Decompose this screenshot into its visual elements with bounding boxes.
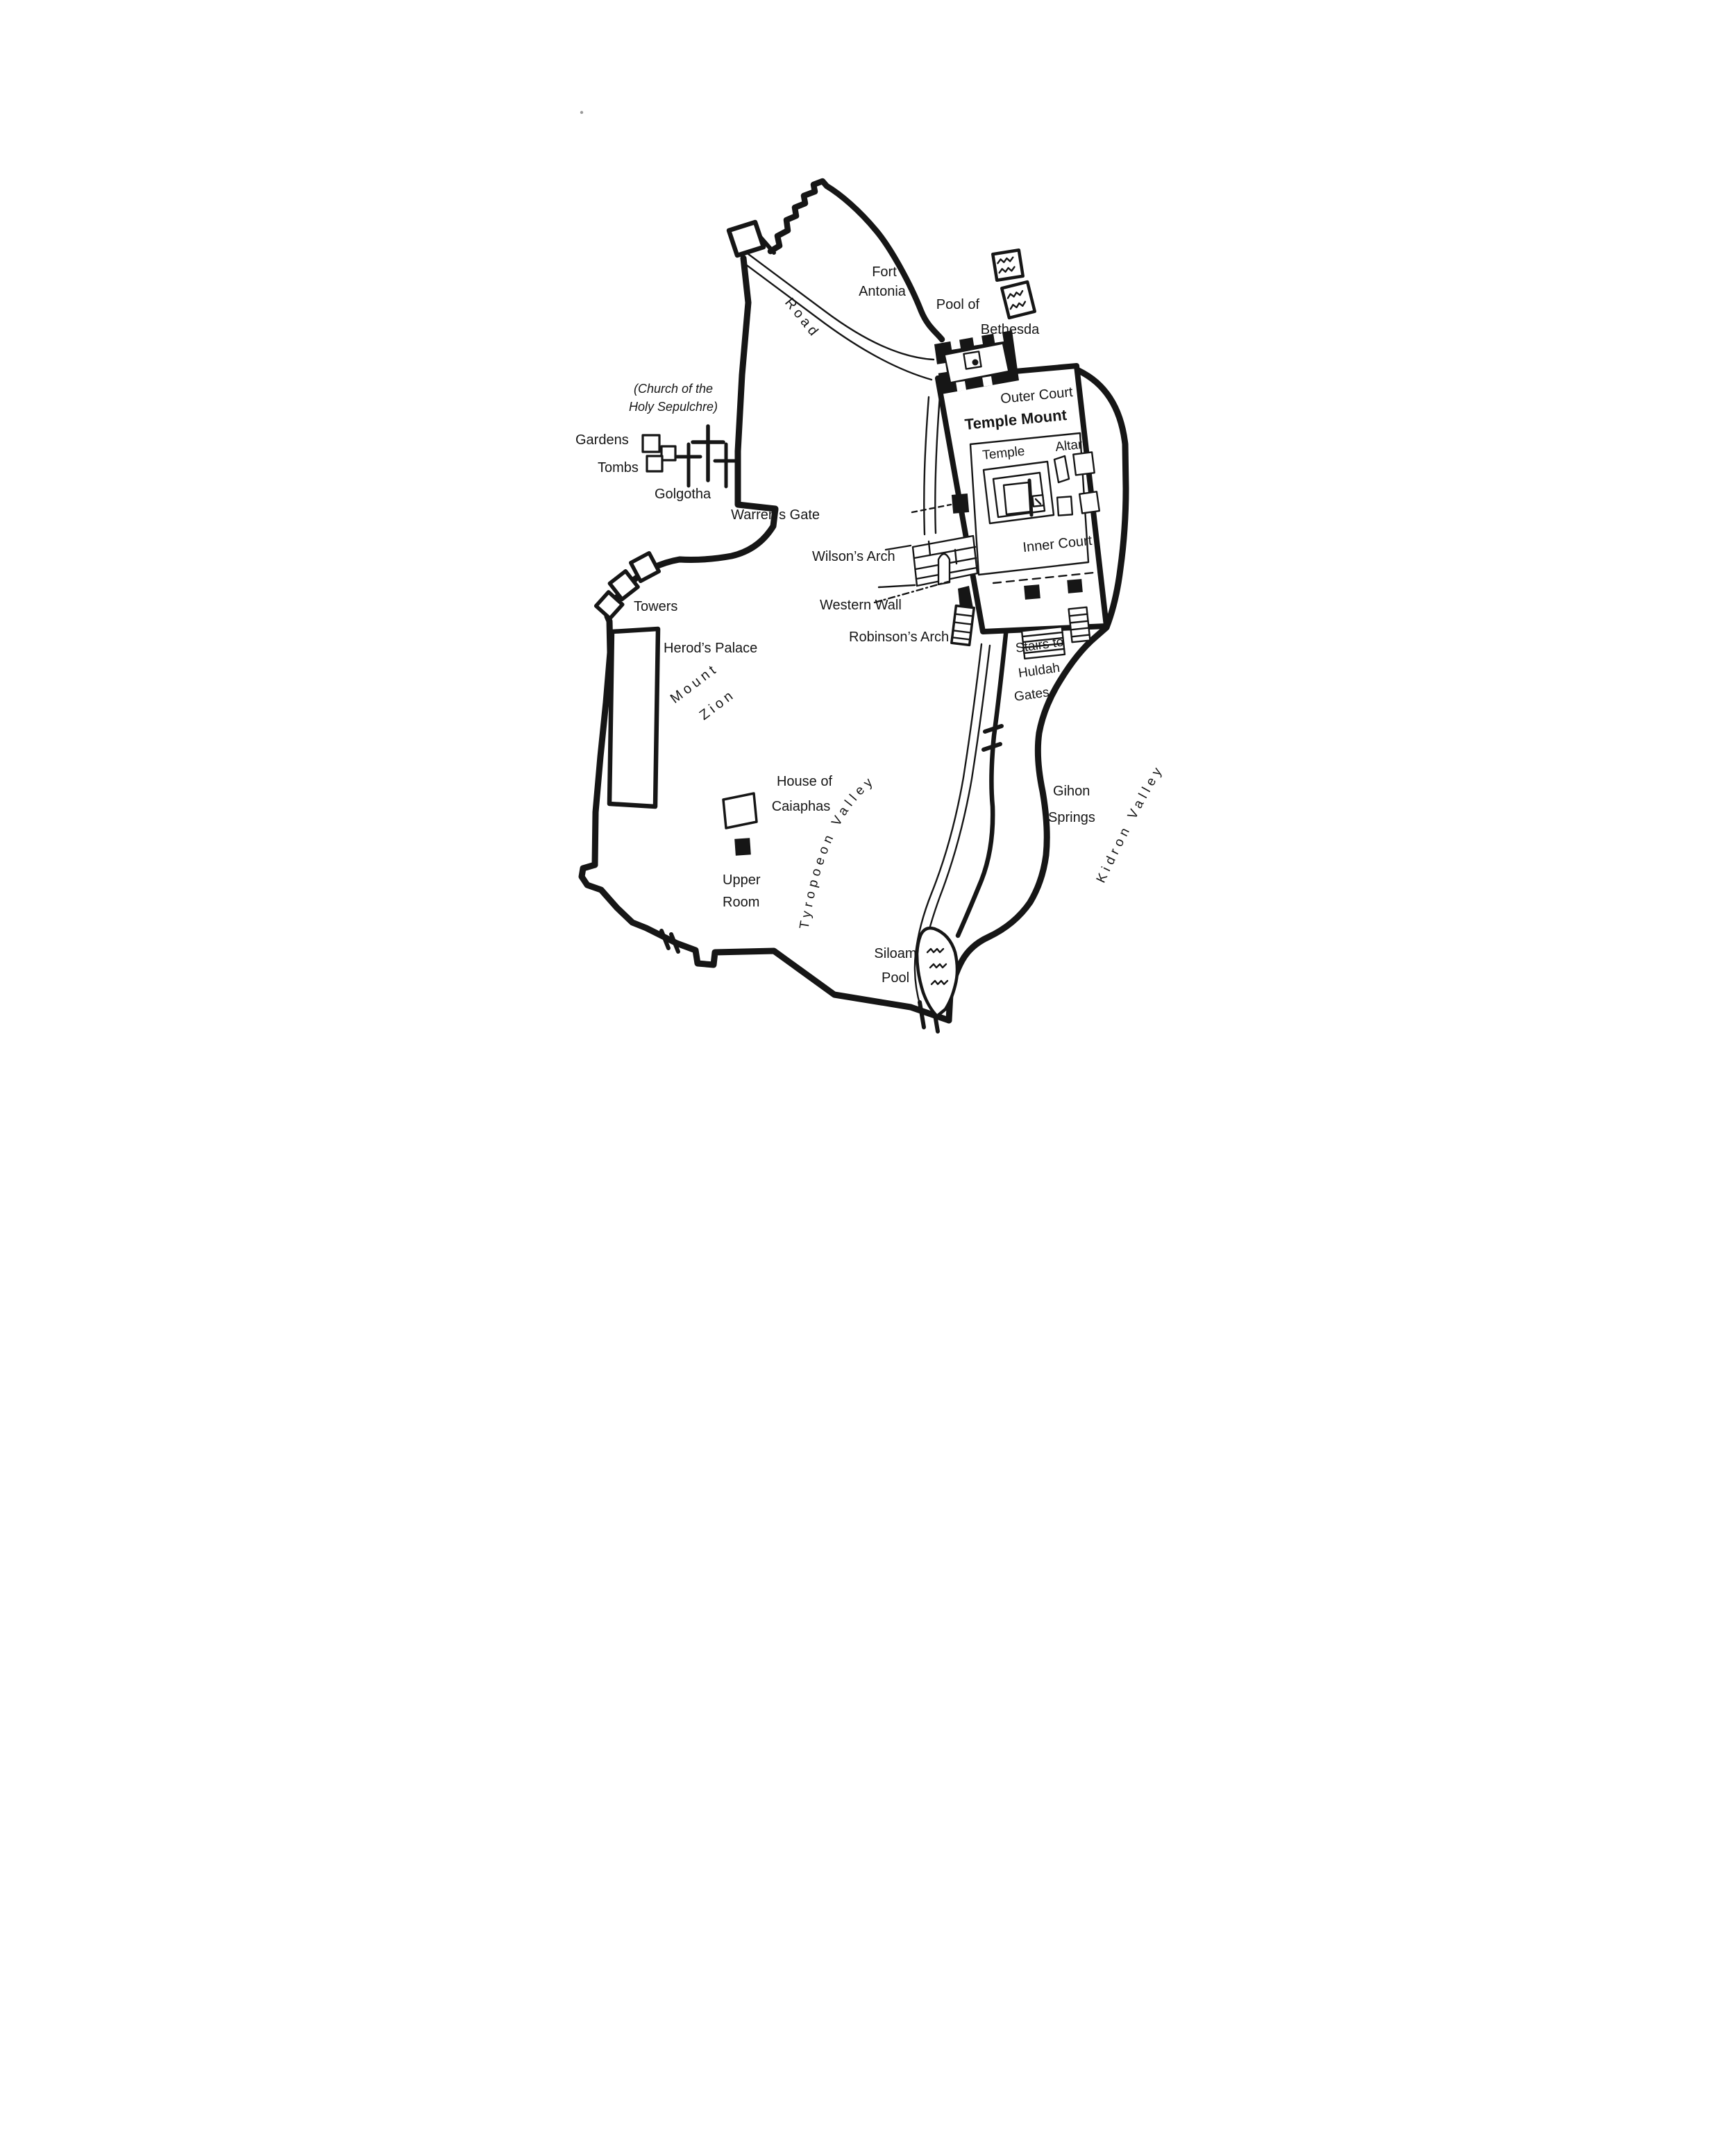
fort-antonia-label: Antonia bbox=[859, 284, 907, 299]
wilsons-arch-causeway bbox=[913, 536, 977, 586]
south-gate-icon bbox=[1024, 584, 1040, 600]
fort-keep-mark bbox=[972, 360, 978, 366]
tombs-label: Tombs bbox=[598, 460, 639, 475]
church-holy-sepulchre-label: (Church of the bbox=[633, 382, 712, 396]
jerusalem-city-map: Fort Antonia Pool of Bethesda (Church of… bbox=[435, 0, 1302, 1071]
fort-crenel bbox=[936, 363, 947, 373]
pool-of-bethesda bbox=[993, 250, 1034, 318]
pool-of-bethesda-label: Bethesda bbox=[980, 322, 1039, 337]
warrens-gate-leader bbox=[912, 505, 951, 512]
golgotha-crosses bbox=[677, 426, 737, 487]
gihon-springs-label: Gihon bbox=[1053, 784, 1090, 799]
herods-palace-label: Herod’s Palace bbox=[664, 641, 757, 656]
golgotha-label: Golgotha bbox=[655, 487, 711, 502]
church-holy-sepulchre-label: Holy Sepulchre) bbox=[628, 400, 717, 414]
towers-label: Towers bbox=[634, 599, 677, 614]
northwest-gate-tower bbox=[729, 222, 764, 255]
upper-room-label: Room bbox=[723, 895, 759, 910]
stairs-huldah-label: Gates bbox=[1013, 685, 1050, 705]
fort-keep bbox=[963, 351, 981, 369]
cross-icon bbox=[677, 444, 700, 486]
fort-crenel bbox=[982, 376, 993, 387]
altar-icon bbox=[1073, 452, 1094, 475]
upper-room-label: Upper bbox=[723, 872, 761, 888]
robinsons-arch-structure bbox=[951, 606, 973, 646]
mount-zion-label: Zion bbox=[696, 686, 738, 723]
cross-icon bbox=[715, 444, 737, 487]
house-of-caiaphas-label: House of bbox=[776, 774, 832, 789]
lower-city-wall bbox=[958, 627, 1006, 936]
house-of-caiaphas-building bbox=[723, 793, 757, 828]
gihon-springs-label: Springs bbox=[1048, 810, 1095, 825]
wilsons-arch-label: Wilson’s Arch bbox=[812, 549, 895, 564]
tomb-icon bbox=[661, 446, 675, 460]
tyropoeon-road-line bbox=[925, 646, 990, 950]
road-line bbox=[748, 254, 934, 360]
temple-porch bbox=[1029, 480, 1031, 515]
tomb-icon bbox=[647, 456, 662, 471]
siloam-pool-label: Pool bbox=[881, 970, 909, 986]
robinsons-arch-label: Robinson’s Arch bbox=[849, 630, 949, 645]
upper-room-icon bbox=[734, 838, 751, 855]
pool-icon bbox=[1002, 282, 1035, 318]
warrens-gate-label: Warren’s Gate bbox=[731, 507, 820, 523]
cross-icon bbox=[693, 426, 723, 480]
pool-icon bbox=[993, 250, 1022, 280]
tyropoeon-valley-label: Tyropoeon Valley bbox=[797, 773, 878, 930]
altar-label: Altar bbox=[1054, 437, 1084, 455]
wilsons-arch-pointer bbox=[879, 585, 915, 587]
fort-crenel bbox=[956, 381, 966, 391]
arch-opening bbox=[938, 554, 950, 584]
warrens-gate-icon bbox=[951, 494, 968, 514]
house-of-caiaphas-label: Caiaphas bbox=[771, 799, 830, 814]
laver-icon bbox=[1057, 496, 1072, 515]
tomb-icon bbox=[643, 435, 659, 452]
gate-icon bbox=[985, 726, 1002, 732]
south-wall bbox=[582, 865, 949, 1020]
paper-speck bbox=[580, 111, 582, 114]
laver-icon bbox=[1079, 491, 1099, 513]
stairs-huldah-label: Huldah bbox=[1017, 661, 1061, 681]
siloam-pool-label: Siloam bbox=[874, 946, 916, 961]
street-line bbox=[924, 397, 929, 534]
kidron-valley-label: Kidron Valley bbox=[1093, 761, 1167, 885]
western-wall-label: Western Wall bbox=[820, 598, 902, 613]
street-line bbox=[935, 396, 940, 533]
gardens-label: Gardens bbox=[575, 432, 629, 448]
jerusalem-map-page: Fort Antonia Pool of Bethesda (Church of… bbox=[435, 0, 1302, 1071]
herods-palace-building bbox=[609, 629, 658, 807]
gate-icon bbox=[984, 744, 1000, 750]
pool-of-bethesda-label: Pool of bbox=[936, 297, 979, 312]
south-gate-icon bbox=[1067, 579, 1083, 593]
fort-antonia-label: Fort bbox=[872, 264, 897, 280]
fort-crenel bbox=[950, 339, 961, 350]
